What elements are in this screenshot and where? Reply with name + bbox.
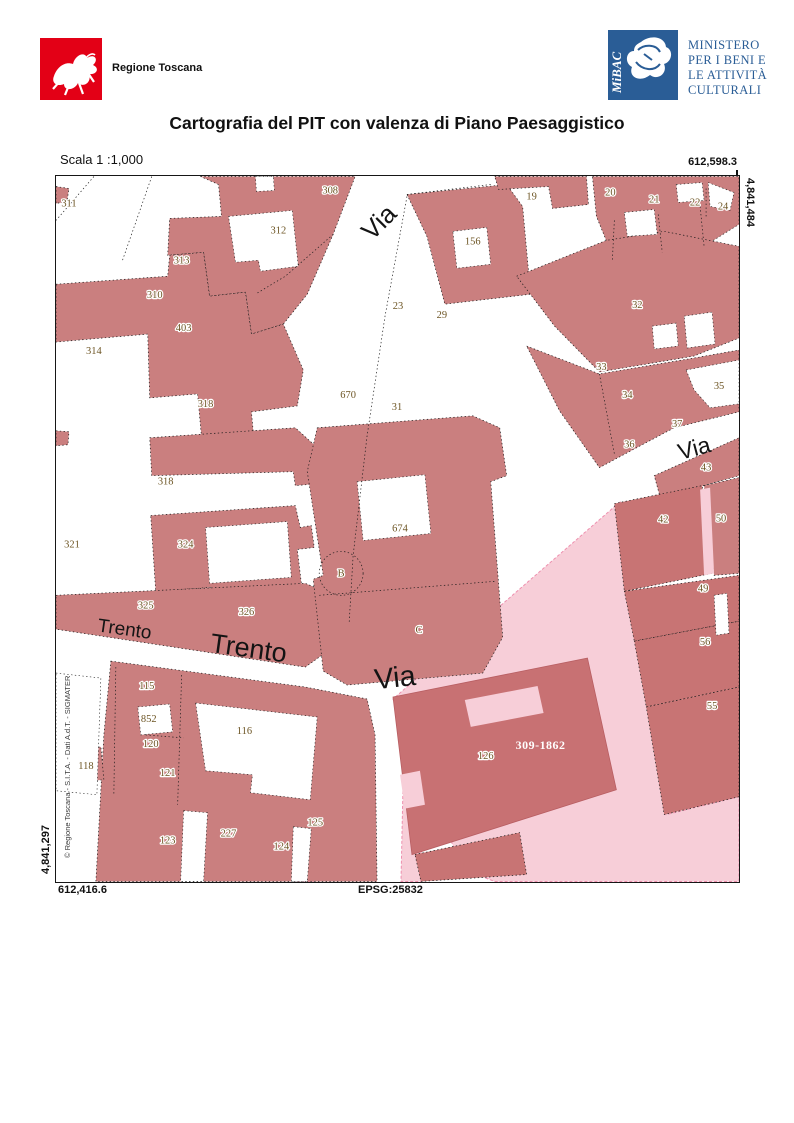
parcel-label-852: 852 (141, 714, 157, 725)
mibac-line: MINISTERO (688, 38, 767, 53)
parcel-label-670: 670 (340, 390, 356, 401)
parcel-label-24: 24 (718, 201, 729, 212)
parcel-label-116: 116 (237, 726, 252, 737)
page-title: Cartografia del PIT con valenza di Piano… (0, 113, 794, 134)
map-canvas: 3113083123133104033143183183213243253266… (55, 175, 740, 883)
parcel-label-50: 50 (716, 514, 726, 525)
parcel-label-36: 36 (624, 440, 634, 451)
parcel-label-123: 123 (160, 836, 176, 847)
parcel-label-674: 674 (392, 523, 408, 534)
parcel-label-35: 35 (714, 381, 724, 392)
coordinate-top-right: 612,598.3 (540, 156, 737, 168)
street-label-Via: Via (356, 199, 402, 245)
coordinate-bottom-left: 612,416.6 (58, 884, 107, 896)
mibac-line: CULTURALI (688, 83, 767, 98)
parcel-label-313: 313 (174, 255, 190, 266)
parcel-label-43: 43 (701, 463, 711, 474)
parcel-label-318: 318 (198, 399, 214, 410)
parcel-label-56: 56 (700, 637, 710, 648)
parcel-label-19: 19 (526, 191, 536, 202)
parcel-label-227: 227 (221, 829, 237, 840)
parcel-label-156: 156 (465, 236, 481, 247)
copyright-attribution: © Regione Toscana - S.I.T.A. - Dati A.d.… (63, 676, 72, 858)
parcel-label-32: 32 (632, 300, 642, 311)
regione-toscana-logo (40, 38, 102, 100)
parcel-label-29: 29 (437, 310, 447, 321)
parcel-label-124: 124 (273, 842, 289, 853)
parcel-label-33: 33 (596, 362, 606, 373)
mibac-line: PER I BENI E (688, 53, 767, 68)
parcel-label-21: 21 (649, 194, 659, 205)
parcel-label-49: 49 (698, 583, 708, 594)
parcel-label-126: 126 (478, 751, 494, 762)
parcel-label-312: 312 (271, 225, 287, 236)
block-marker-C: C (415, 625, 422, 636)
regione-toscana-label: Regione Toscana (112, 62, 202, 74)
street-label-Via: Via (373, 660, 418, 696)
parcel-label-318: 318 (158, 477, 174, 488)
parcel-label-308: 308 (322, 185, 338, 196)
parcel-label-37: 37 (672, 419, 682, 430)
parcel-label-326: 326 (239, 607, 255, 618)
parcel-label-23: 23 (393, 301, 403, 312)
parcel-label-121: 121 (160, 768, 176, 779)
coordinate-right-vertical: 4,841,484 (744, 178, 756, 227)
mibac-vertical-text: MiBAC (609, 51, 624, 94)
parcel-label-403: 403 (176, 323, 192, 334)
parcel-label-310: 310 (147, 290, 163, 301)
zone-label-309-1862: 309-1862 (516, 738, 566, 752)
parcel-label-120: 120 (143, 739, 159, 750)
block-marker-B: B (338, 568, 345, 579)
parcel-label-31: 31 (392, 402, 402, 413)
coordinate-left-vertical: 4,841,297 (40, 825, 52, 874)
parcel-label-118: 118 (78, 761, 93, 772)
parcel-label-321: 321 (64, 539, 80, 550)
scale-label: Scala 1 :1,000 (60, 152, 143, 167)
parcel-label-42: 42 (658, 515, 668, 526)
parcel-label-22: 22 (690, 197, 700, 208)
parcel-label-324: 324 (178, 539, 194, 550)
mibac-line: LE ATTIVITÀ (688, 68, 767, 83)
epsg-code: EPSG:25832 (358, 884, 423, 896)
parcel-label-34: 34 (622, 390, 633, 401)
mibac-emblem-icon: MiBAC (608, 30, 678, 100)
mibac-logo: MiBAC (608, 30, 678, 100)
parcel-label-325: 325 (138, 600, 154, 611)
mibac-ministry-text: MINISTERO PER I BENI E LE ATTIVITÀ CULTU… (688, 38, 767, 98)
parcel-label-125: 125 (307, 818, 323, 829)
parcel-label-311: 311 (61, 198, 76, 209)
parcel-label-55: 55 (707, 701, 717, 712)
parcel-label-20: 20 (605, 187, 615, 198)
cadastral-map: 3113083123133104033143183183213243253266… (56, 176, 739, 882)
parcel-label-314: 314 (86, 346, 102, 357)
pegasus-icon (40, 38, 102, 100)
parcel-label-115: 115 (139, 681, 154, 692)
